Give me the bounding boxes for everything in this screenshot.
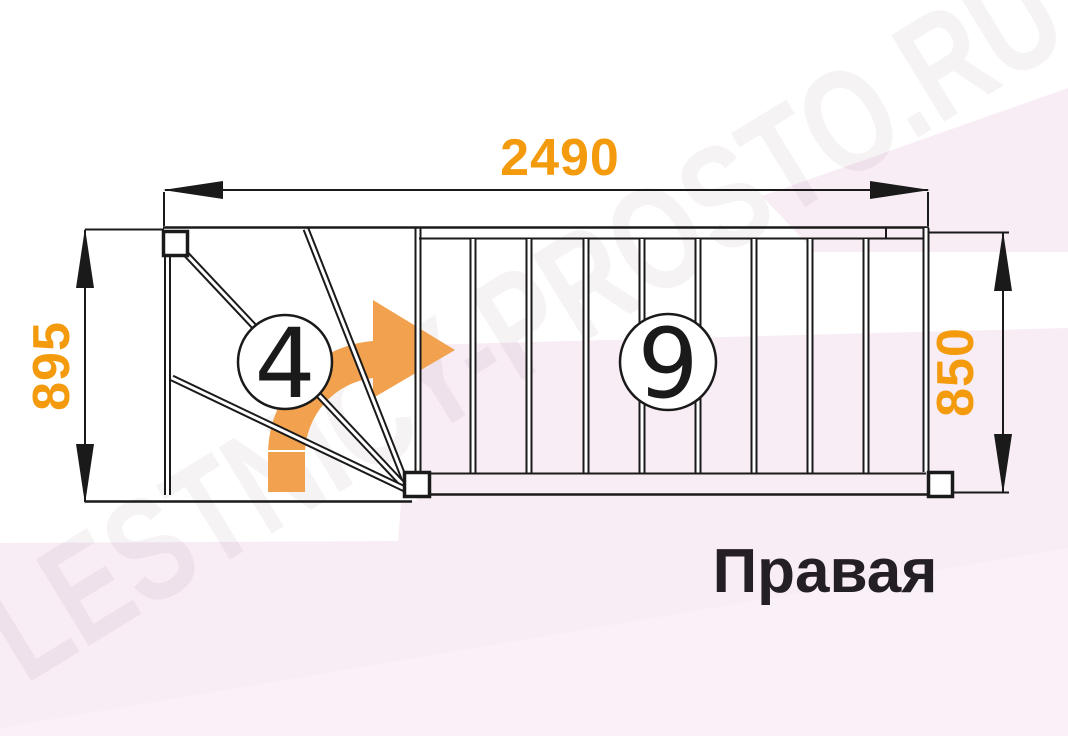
newel-post-right [929,473,953,497]
straight-step-count: 9 [637,308,698,420]
dimension-label-total-length: 2490 [460,132,660,184]
newel-post-middle [405,473,430,497]
newel-post-top-left [164,232,188,256]
dimension-label-flight-width: 850 [930,302,982,442]
winder-step-count: 4 [254,308,315,420]
dim-arrow-left-icon [163,181,223,199]
staircase-plan: LESTNICY-PROSTO.RU [0,0,1068,736]
plan-drawing: LESTNICY-PROSTO.RU [0,0,1068,736]
plan-title: Правая [645,540,1005,604]
dimension-label-winder-width: 895 [26,296,78,436]
dim-arrow-up-icon [76,228,94,288]
